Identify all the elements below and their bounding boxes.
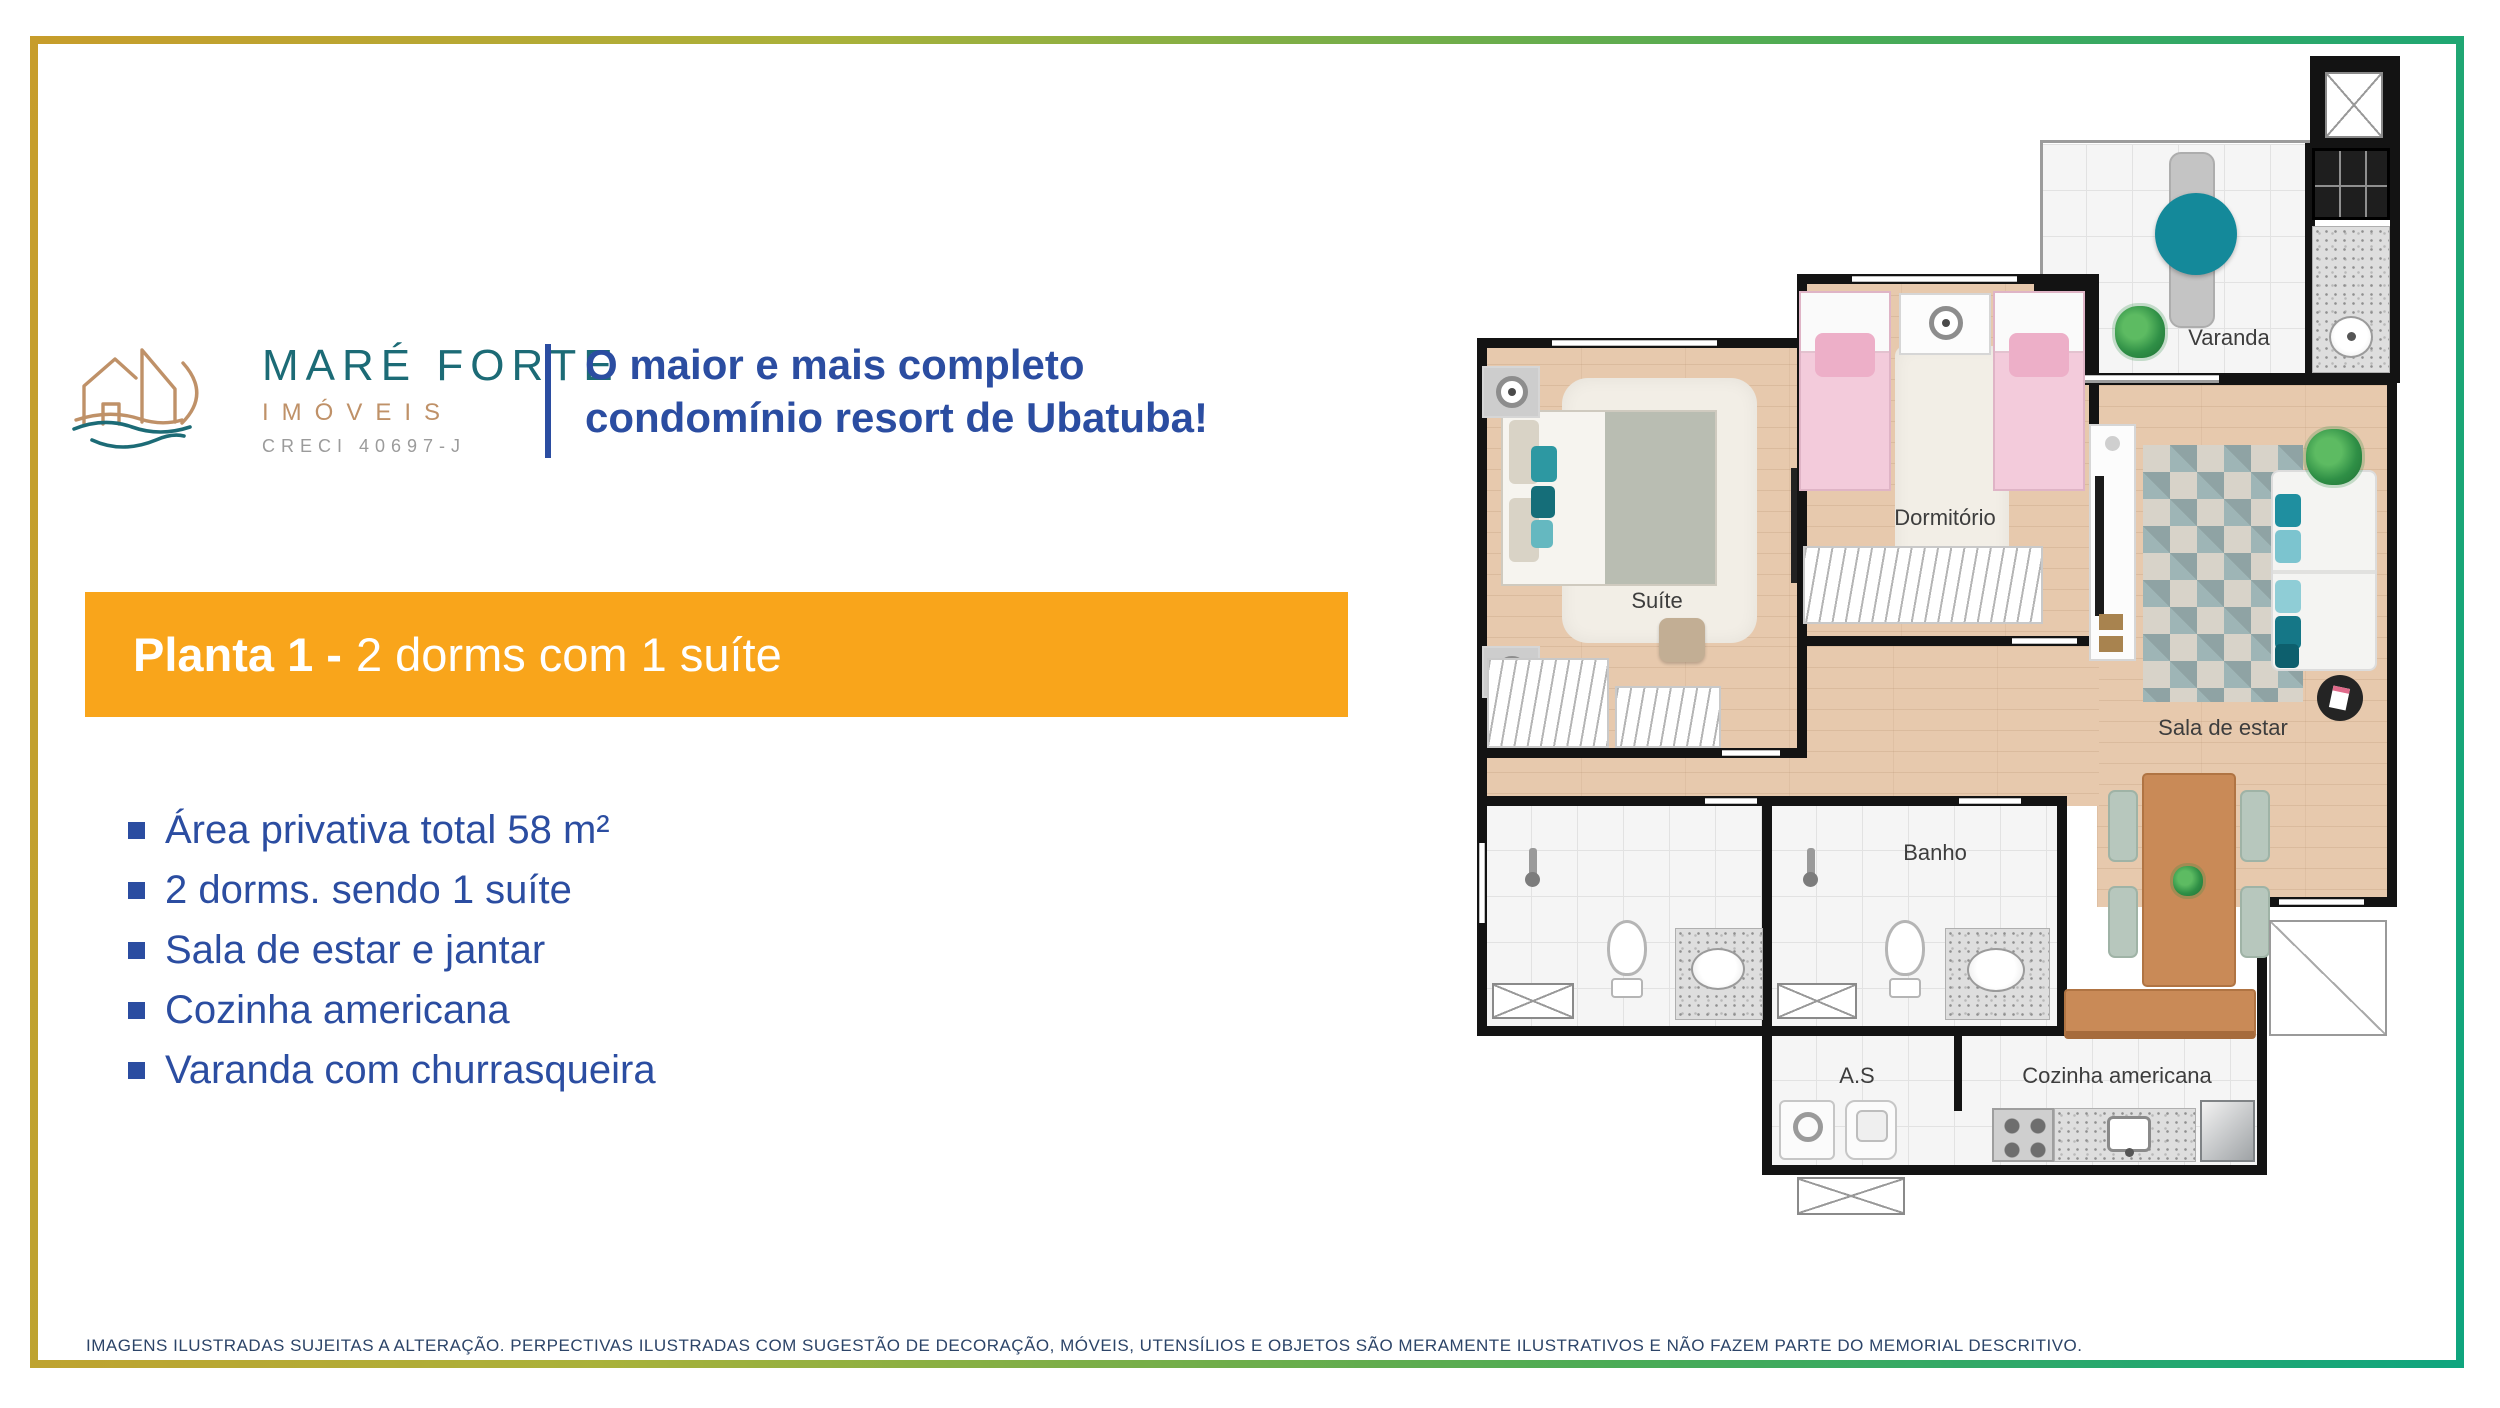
laundry-tank bbox=[1845, 1100, 1897, 1160]
dining-chair bbox=[2240, 886, 2270, 958]
sofa-divider bbox=[2273, 570, 2375, 574]
door-opening bbox=[2012, 638, 2077, 644]
toilet-tank bbox=[1889, 978, 1921, 998]
churrasqueira-grill bbox=[2312, 148, 2390, 220]
lamp bbox=[1929, 306, 1963, 340]
magazine bbox=[2329, 685, 2350, 710]
dormitorio-rug bbox=[1895, 346, 2009, 574]
suite-bed bbox=[1501, 410, 1717, 586]
faucet bbox=[2347, 332, 2356, 341]
pillow-teal bbox=[1531, 486, 1555, 518]
dining-chair bbox=[2240, 790, 2270, 862]
suite-pouf bbox=[1659, 618, 1705, 662]
brand-logo-text: MARÉ FORTE IMÓVEIS CRECI 40697-J bbox=[262, 341, 620, 457]
sala-tv bbox=[2095, 476, 2104, 616]
faucet bbox=[2125, 1148, 2134, 1157]
feature-text: Cozinha americana bbox=[165, 988, 510, 1033]
brand-logo: MARÉ FORTE IMÓVEIS CRECI 40697-J bbox=[70, 330, 620, 467]
room-label-suite: Suíte bbox=[1631, 588, 1682, 614]
dining-chair bbox=[2108, 790, 2138, 862]
room-label-varanda: Varanda bbox=[2188, 325, 2270, 351]
brand-creci: CRECI 40697-J bbox=[262, 436, 620, 457]
window bbox=[2279, 899, 2364, 905]
feature-text: Varanda com churrasqueira bbox=[165, 1048, 656, 1093]
brand-name: MARÉ FORTE bbox=[262, 341, 620, 391]
kitchen-sink bbox=[2107, 1116, 2151, 1152]
feature-item: Sala de estar e jantar bbox=[128, 920, 656, 980]
dormitorio-wardrobe-rack bbox=[1803, 546, 2043, 624]
room-label-area-servico: A.S bbox=[1839, 1063, 1874, 1089]
door-opening bbox=[1705, 798, 1757, 804]
room-label-cozinha: Cozinha americana bbox=[2022, 1063, 2212, 1089]
brand-subtitle: IMÓVEIS bbox=[262, 399, 620, 427]
bullet-square-icon bbox=[128, 882, 145, 899]
door-opening bbox=[1722, 750, 1780, 756]
varanda-railing bbox=[2040, 140, 2312, 143]
fridge bbox=[2200, 1100, 2255, 1162]
exterior-box bbox=[1797, 1177, 1905, 1215]
pillow-teal bbox=[1531, 446, 1557, 482]
shower-tray bbox=[1777, 983, 1857, 1019]
feature-item: Área privativa total 58 m² bbox=[128, 800, 656, 860]
wall-segment bbox=[1954, 1036, 1962, 1111]
shower-tray bbox=[1492, 983, 1574, 1019]
sala-side-table bbox=[2317, 675, 2363, 721]
bullet-square-icon bbox=[128, 1002, 145, 1019]
pillow-pink bbox=[1815, 333, 1875, 377]
suite-wardrobe-rack bbox=[1615, 686, 1721, 748]
brand-logo-icon bbox=[70, 330, 242, 467]
headline-line1: O maior e mais completo bbox=[585, 338, 1208, 391]
wall-segment bbox=[1762, 796, 1772, 1036]
toilet-tank bbox=[1611, 978, 1643, 998]
sala-sofa bbox=[2271, 470, 2377, 671]
doormat bbox=[2099, 636, 2123, 652]
shower-head-dot bbox=[1525, 872, 1540, 887]
shaft-duct-box bbox=[2325, 72, 2383, 138]
room-label-banho: Banho bbox=[1903, 840, 1967, 866]
feature-item: 2 dorms. sendo 1 suíte bbox=[128, 860, 656, 920]
tank-bowl bbox=[1856, 1110, 1888, 1142]
dormitorio-bed bbox=[1799, 291, 1891, 491]
wall-segment bbox=[1762, 1165, 2267, 1175]
window bbox=[1479, 843, 1485, 923]
lamp bbox=[1496, 376, 1528, 408]
washer-door bbox=[1793, 1112, 1823, 1142]
pillow-teal bbox=[2275, 494, 2301, 527]
doormat bbox=[2099, 614, 2123, 630]
disclaimer-text: IMAGENS ILUSTRADAS SUJEITAS A ALTERAÇÃO.… bbox=[86, 1336, 2082, 1356]
kitchen-island bbox=[2064, 989, 2256, 1039]
room-label-dormitorio: Dormitório bbox=[1894, 505, 1995, 531]
plant bbox=[2173, 866, 2203, 896]
headline-divider bbox=[545, 344, 551, 458]
stove bbox=[1992, 1108, 2054, 1162]
feature-text: Área privativa total 58 m² bbox=[165, 808, 610, 853]
headline: O maior e mais completo condomínio resor… bbox=[585, 338, 1208, 445]
exterior-box bbox=[2269, 920, 2387, 1036]
feature-list: Área privativa total 58 m² 2 dorms. send… bbox=[128, 800, 656, 1100]
suite-blanket bbox=[1605, 412, 1715, 584]
shower-head-dot bbox=[1803, 872, 1818, 887]
window bbox=[1852, 276, 2017, 282]
wall-segment bbox=[1762, 1026, 1772, 1175]
bullet-square-icon bbox=[128, 822, 145, 839]
wall-segment bbox=[2390, 143, 2400, 383]
feature-text: 2 dorms. sendo 1 suíte bbox=[165, 868, 572, 913]
pillow-teal bbox=[2275, 580, 2301, 613]
sala-decor bbox=[2105, 436, 2120, 451]
bullet-square-icon bbox=[128, 942, 145, 959]
door-opening bbox=[1959, 798, 2021, 804]
headline-line2: condomínio resort de Ubatuba! bbox=[585, 391, 1208, 444]
window bbox=[1552, 340, 1717, 346]
feature-item: Varanda com churrasqueira bbox=[128, 1040, 656, 1100]
varanda-sliding-door bbox=[2067, 375, 2219, 383]
bullet-square-icon bbox=[128, 1062, 145, 1079]
pillow-teal bbox=[2275, 644, 2299, 668]
plan-title-regular: 2 dorms com 1 suíte bbox=[356, 627, 782, 682]
dining-chair bbox=[2108, 886, 2138, 958]
wall-segment bbox=[2387, 378, 2397, 907]
plan-title-bold: Planta 1 - bbox=[133, 627, 342, 682]
wall-segment bbox=[1477, 1026, 2067, 1036]
pillow-pink bbox=[2009, 333, 2069, 377]
flyer-page: MARÉ FORTE IMÓVEIS CRECI 40697-J O maior… bbox=[0, 0, 2500, 1408]
pillow-teal bbox=[1531, 520, 1553, 548]
plan-title-banner: Planta 1 - 2 dorms com 1 suíte bbox=[85, 592, 1348, 717]
suite-wardrobe-rack bbox=[1487, 658, 1609, 748]
feature-text: Sala de estar e jantar bbox=[165, 928, 545, 973]
wall-segment bbox=[1762, 796, 2067, 806]
plant bbox=[2306, 429, 2362, 485]
toilet bbox=[1607, 920, 1647, 976]
feature-item: Cozinha americana bbox=[128, 980, 656, 1040]
plant bbox=[2115, 306, 2165, 358]
room-label-sala: Sala de estar bbox=[2158, 715, 2288, 741]
bath-sink bbox=[1967, 948, 2025, 992]
washing-machine bbox=[1779, 1100, 1835, 1160]
pillow-teal bbox=[2275, 530, 2301, 563]
dormitorio-bed bbox=[1993, 291, 2085, 491]
suite-tv-panel bbox=[1791, 468, 1797, 583]
varanda-table bbox=[2155, 193, 2237, 275]
bath-sink bbox=[1691, 948, 1745, 990]
toilet bbox=[1885, 920, 1925, 976]
floorplan: Varanda Dormitório Suíte Sala de estar B… bbox=[1467, 48, 2402, 1183]
